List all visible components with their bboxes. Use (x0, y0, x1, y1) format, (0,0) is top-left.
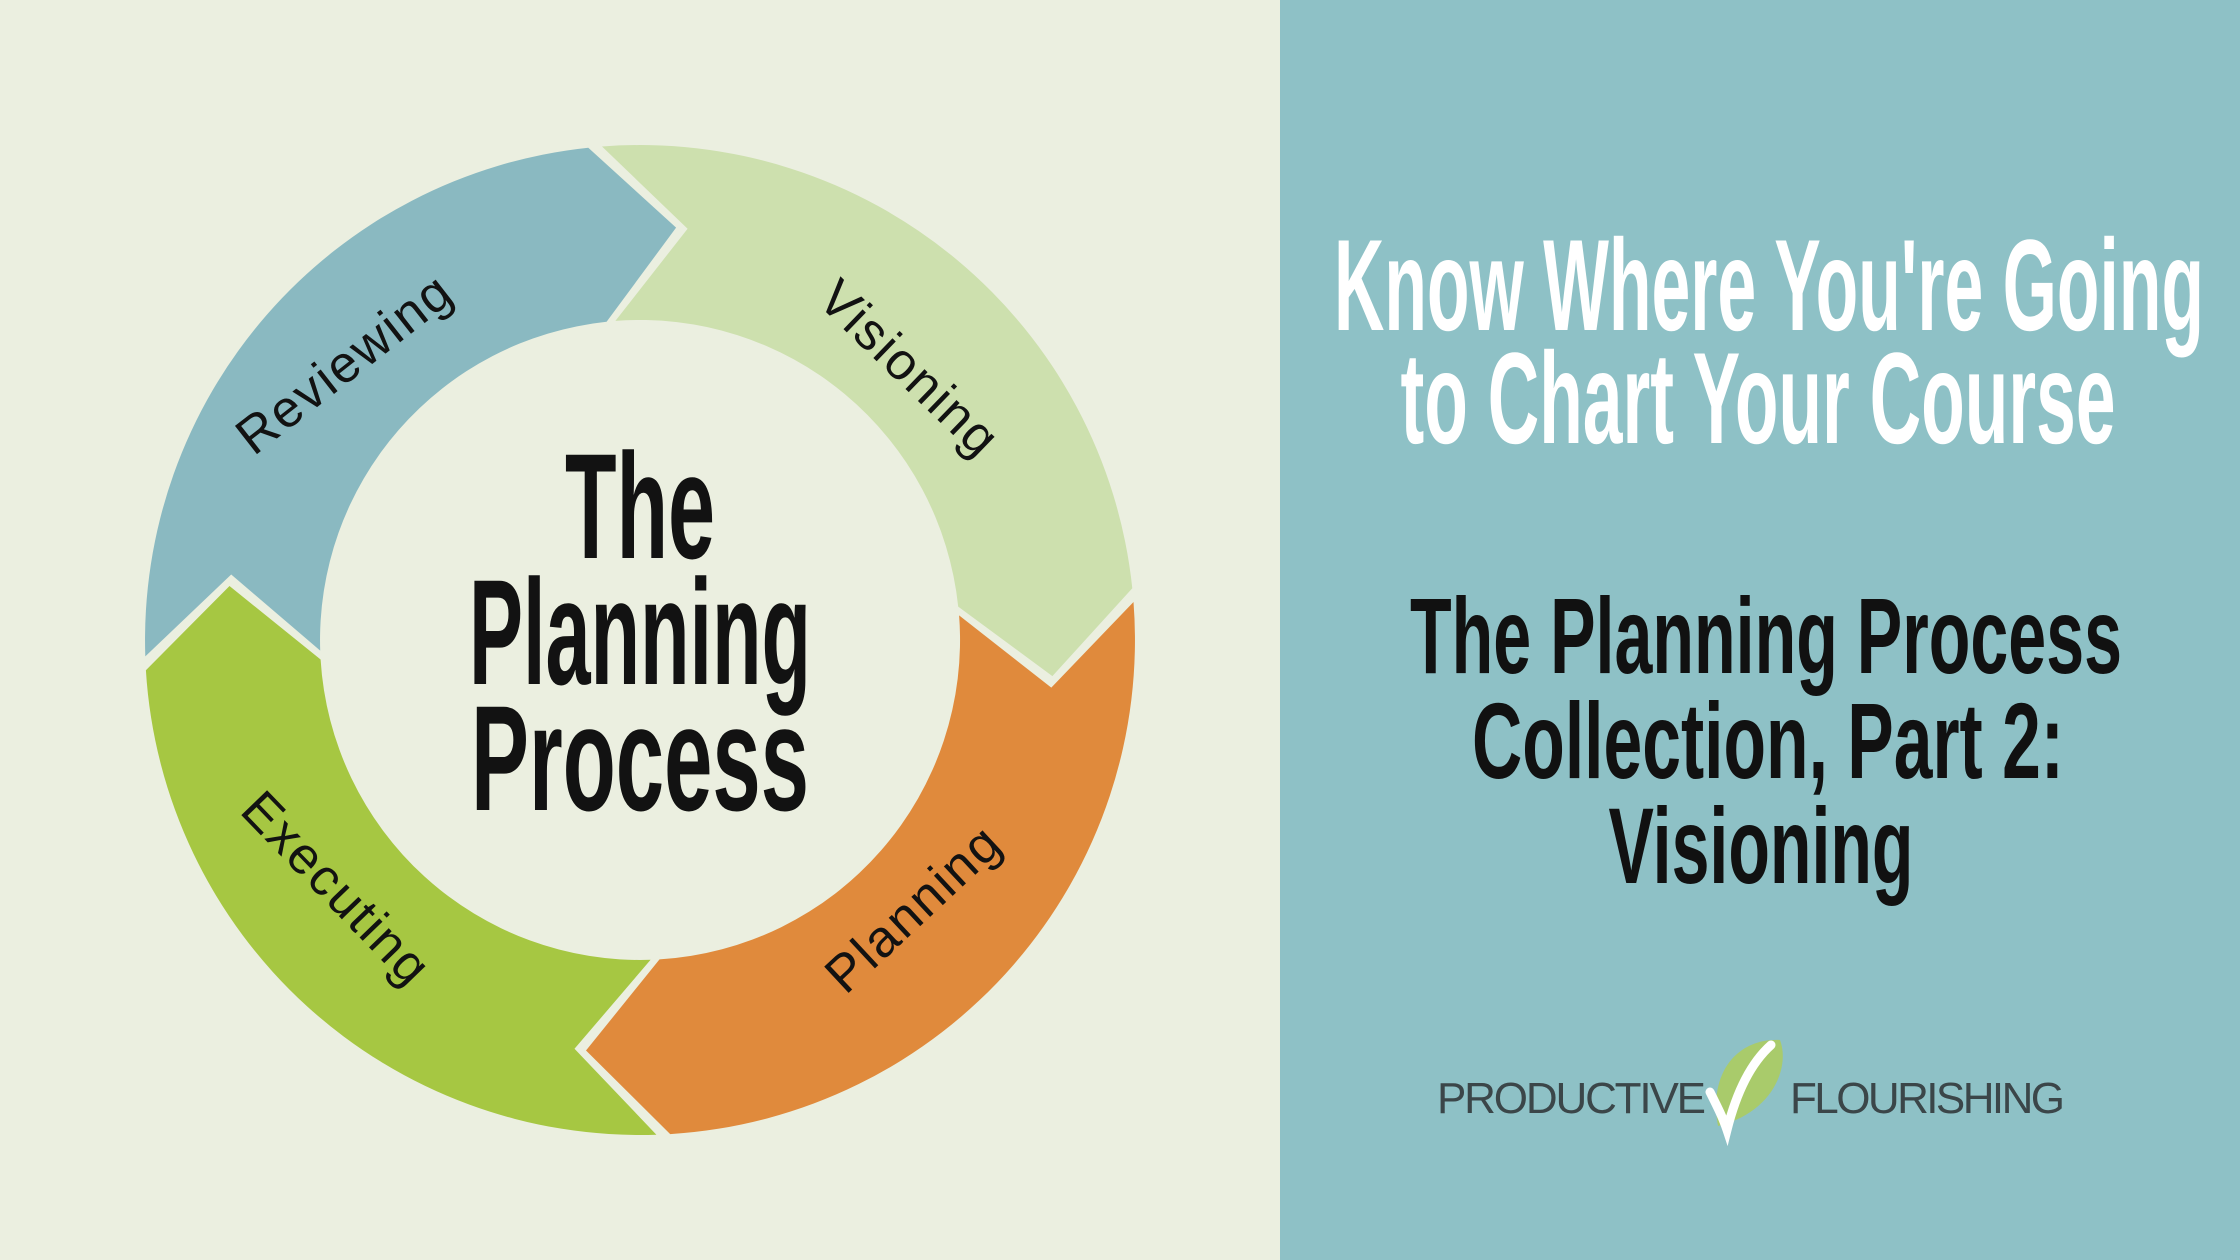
heading-primary-line-2: to Chart Your Course (1401, 325, 2116, 471)
heading-secondary-line-1: The Planning Process (1410, 575, 2122, 696)
leaf-check-icon (1710, 1040, 1783, 1130)
logo-word-productive: PRODUCTIVE (1437, 1074, 1706, 1123)
heading-primary: Know Where You're Going to Chart Your Co… (1334, 212, 2204, 471)
right-panel-content: Know Where You're Going to Chart Your Co… (1280, 0, 2240, 1260)
left-panel: Visioning Planning Executing Reviewing T… (0, 0, 1280, 1260)
logo: PRODUCTIVE FLOURISHING (1437, 1040, 2065, 1130)
heading-secondary-line-3: Visioning (1609, 785, 1914, 906)
leaf-shape (1716, 1040, 1783, 1126)
heading-secondary-line-2: Collection, Part 2: (1472, 680, 2064, 801)
center-title-line-3: Process (471, 674, 809, 842)
logo-word-flourishing: FLOURISHING (1790, 1074, 2065, 1123)
heading-secondary: The Planning Process Collection, Part 2:… (1410, 575, 2122, 906)
blog-cover-graphic: Visioning Planning Executing Reviewing T… (0, 0, 2240, 1260)
right-panel: Know Where You're Going to Chart Your Co… (1280, 0, 2240, 1260)
planning-cycle-diagram: Visioning Planning Executing Reviewing T… (0, 0, 1280, 1260)
center-title: The Planning Process (469, 422, 811, 842)
